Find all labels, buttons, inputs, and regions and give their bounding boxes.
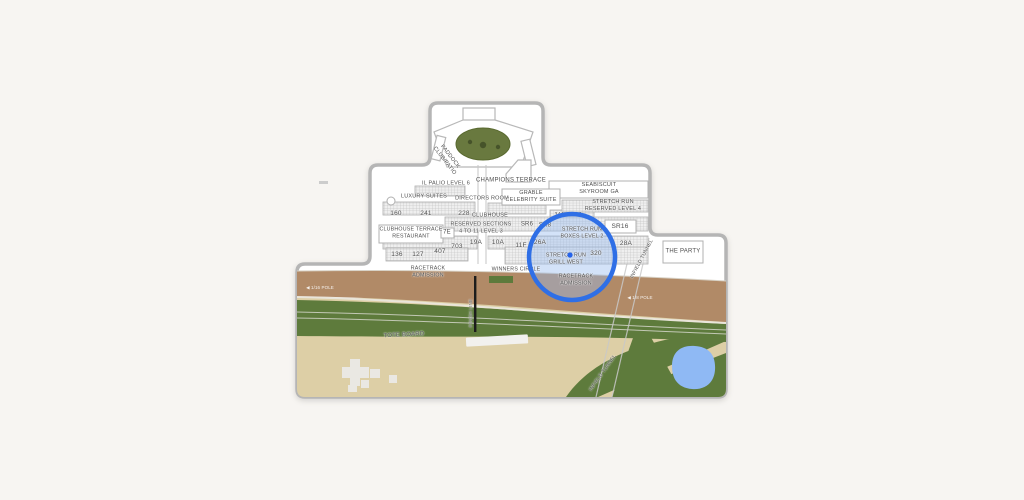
section-sr6[interactable]: SR6 (521, 221, 533, 229)
section-stretch-run-grill-west[interactable]: STRETCH RUN GRILL WEST (546, 252, 586, 265)
section-clubhouse[interactable]: CLUBHOUSE (472, 213, 508, 220)
finish-line-label: FINISH LINE (468, 299, 474, 327)
pole-marker-right: ◀ 1/8 POLE (627, 295, 652, 301)
section-luxury-suites[interactable]: LUXURY SUITES (401, 194, 447, 201)
section-il-palio[interactable]: IL PALIO LEVEL 6 (422, 181, 470, 188)
section-10a[interactable]: 10A (492, 239, 504, 247)
section-racetrack-admission-west[interactable]: RACETRACK ADMISSION (411, 265, 445, 278)
section-racetrack-admission-east[interactable]: RACETRACK ADMISSION (559, 273, 593, 286)
pole-marker-left: ◀ 1/16 POLE (306, 285, 334, 291)
section-directors-room[interactable]: DIRECTORS ROOM (455, 196, 509, 203)
section-136[interactable]: 136 (391, 251, 402, 259)
section-paddock-club[interactable]: PADDOCK CLUB/PATIO (431, 141, 463, 176)
section-grable-celebrity[interactable]: GRABLE CELEBRITY SUITE (505, 190, 556, 204)
section-stretch-run-boxes[interactable]: STRETCH RUN BOXES LEVEL 2 (560, 226, 603, 239)
section-26a[interactable]: 26A (534, 239, 546, 247)
winners-circle-label: WINNERS CIRCLE (492, 267, 541, 274)
infield-tunnel-label-lower: INFIELD TUNNEL (588, 353, 618, 392)
venue-map-canvas: PADDOCK CLUB/PATIO CHAMPIONS TERRACE IL … (0, 0, 1024, 500)
section-seabiscuit-skyroom[interactable]: SEABISCUIT SKYROOM GA (579, 182, 619, 196)
section-clubhouse-terrace[interactable]: CLUBHOUSE TERRACE RESTAURANT (379, 226, 442, 239)
section-11f[interactable]: 11F (515, 242, 526, 250)
section-228[interactable]: 228 (458, 210, 469, 218)
section-41j[interactable]: 41J (573, 212, 582, 218)
section-reserved-sections[interactable]: RESERVED SECTIONS 4 TO 11 LEVEL 3 (451, 221, 512, 234)
section-the-party[interactable]: THE PARTY (666, 248, 701, 256)
label-layer: PADDOCK CLUB/PATIO CHAMPIONS TERRACE IL … (0, 0, 1024, 500)
section-champions-terrace[interactable]: CHAMPIONS TERRACE (476, 177, 546, 185)
section-sr16[interactable]: SR16 (611, 223, 628, 231)
section-160[interactable]: 160 (390, 210, 401, 218)
tote-board-label: TOTE BOARD (383, 331, 424, 341)
section-703[interactable]: 703 (451, 243, 462, 251)
section-34j[interactable]: 34J (555, 212, 564, 218)
section-320[interactable]: 320 (590, 250, 601, 258)
section-127[interactable]: 127 (412, 251, 423, 259)
section-241[interactable]: 241 (420, 210, 431, 218)
section-sr8[interactable]: SR8 (539, 222, 551, 230)
infield-tunnel-label-upper: INFIELD TUNNEL (629, 238, 655, 279)
section-28a[interactable]: 28A (620, 240, 632, 248)
section-stretch-run-reserved[interactable]: STRETCH RUN RESERVED LEVEL 4 (585, 199, 641, 213)
section-407[interactable]: 407 (434, 248, 445, 256)
section-19a[interactable]: 19A (470, 239, 482, 247)
